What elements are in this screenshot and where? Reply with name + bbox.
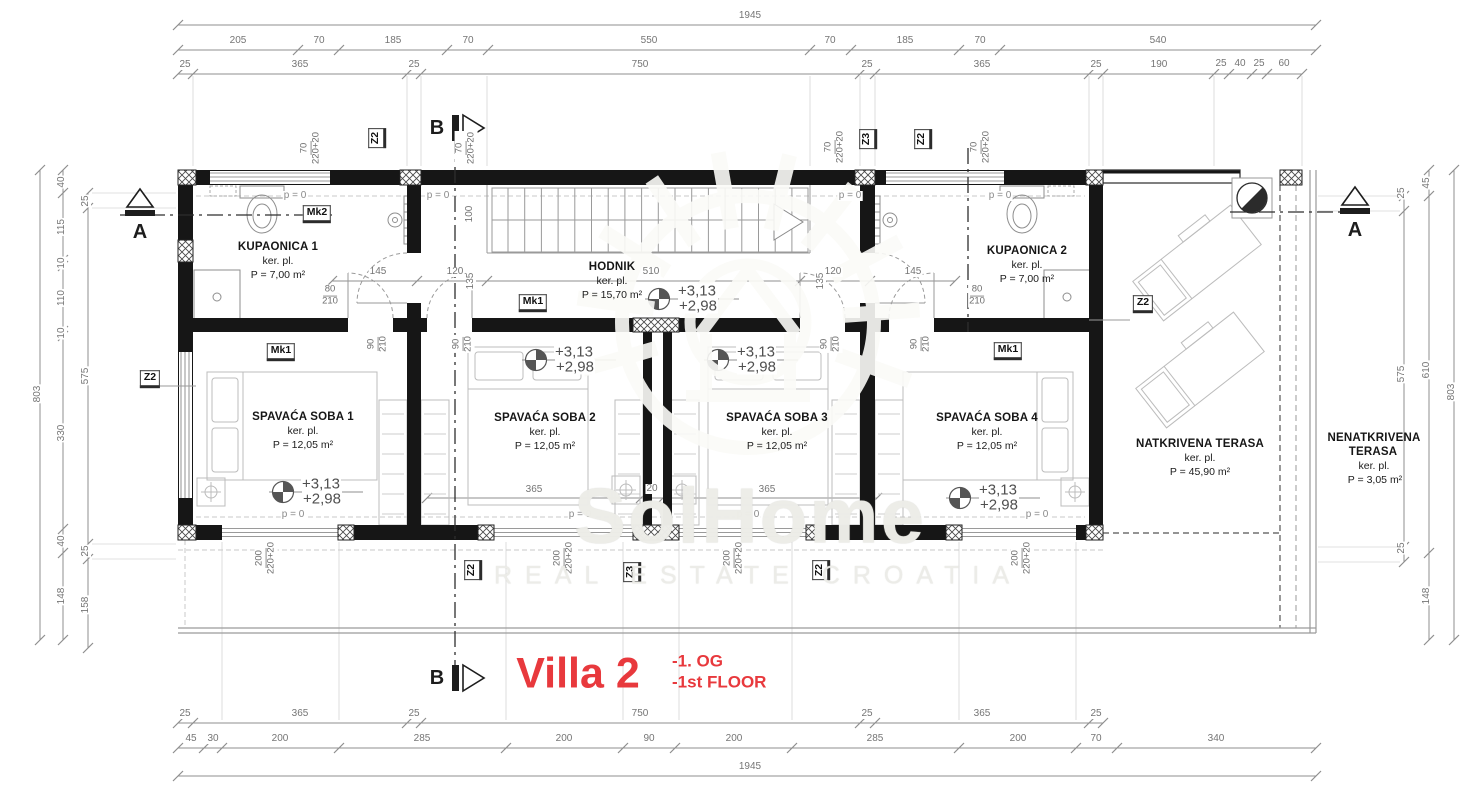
section-b-label: B: [430, 668, 444, 688]
mk1-marker-tag: Mk1: [519, 294, 547, 312]
dim-label: 100: [465, 205, 475, 224]
dim-label: 115: [57, 218, 67, 236]
dim-label: 185: [384, 36, 403, 46]
dim-label: 10: [57, 256, 67, 269]
dim-label: 575: [1397, 365, 1407, 384]
dim-label: 365: [973, 709, 992, 719]
dim-fraction: 200220+20: [255, 541, 278, 575]
room-name: HODNIK: [589, 261, 636, 273]
dim-label: 200: [271, 734, 290, 744]
level-upper-value: +3,13: [554, 345, 594, 360]
dim-label: 750: [631, 60, 650, 70]
room-area: P = 12,05 m²: [515, 440, 575, 452]
dim-label: 60: [1277, 59, 1290, 69]
dim-label: 25: [178, 709, 191, 719]
room-finish: ker. pl.: [972, 426, 1003, 438]
dim-label: 200: [725, 734, 744, 744]
room-finish: ker. pl.: [263, 255, 294, 267]
dim-fraction: 70220+20: [970, 130, 993, 164]
dim-fraction: 70220+20: [824, 130, 847, 164]
room-name: NENATKRIVENA: [1328, 432, 1421, 444]
dim-label: 750: [631, 709, 650, 719]
dim-label: 148: [57, 587, 67, 606]
section-b-label: B: [430, 118, 444, 138]
dim-label: 365: [973, 60, 992, 70]
dim-label: 30: [206, 734, 219, 744]
level-upper-value: +3,13: [978, 483, 1018, 498]
dim-label: 803: [1447, 383, 1457, 402]
dim-label: 1945: [738, 11, 762, 21]
dim-label: 200: [1009, 734, 1028, 744]
room-finish: ker. pl.: [597, 275, 628, 287]
room-area: P = 15,70 m²: [582, 289, 642, 301]
level-upper-value: +3,13: [736, 345, 776, 360]
room-finish: ker. pl.: [530, 426, 561, 438]
drawing-title: Villa 2: [516, 653, 640, 696]
room-area: P = 12,05 m²: [957, 440, 1017, 452]
z3-marker-tag: Z3: [859, 129, 877, 149]
level-lower-value: +2,98: [555, 360, 595, 375]
dim-label: 110: [57, 289, 67, 307]
dim-label: 45: [1422, 176, 1432, 189]
dim-label: 25: [1089, 709, 1102, 719]
dim-label: 330: [57, 424, 67, 443]
z2-marker-tag: Z2: [914, 129, 932, 149]
dim-label: 205: [229, 36, 248, 46]
room-name: TERASA: [1349, 446, 1397, 458]
z2-marker-tag: Z2: [1133, 295, 1153, 313]
dim-label: 25: [1214, 59, 1227, 69]
level-upper-value: +3,13: [677, 284, 717, 299]
room-name: SPAVAĆA SOBA 4: [936, 412, 1038, 424]
dim-fraction: 80210: [968, 285, 986, 308]
level-zero-label: p = 0: [281, 510, 306, 520]
dim-fraction: 80210: [321, 285, 339, 308]
dim-label: 803: [33, 385, 43, 404]
dim-label: 120: [446, 267, 465, 277]
room-finish: ker. pl.: [1185, 452, 1216, 464]
room-name: SPAVAĆA SOBA 3: [726, 412, 828, 424]
dim-label: 145: [904, 267, 923, 277]
room-name: KUPAONICA 2: [987, 245, 1067, 257]
dim-label: 610: [1422, 361, 1432, 380]
dim-label: 25: [407, 60, 420, 70]
room-finish: ker. pl.: [762, 426, 793, 438]
level-lower-value: +2,98: [737, 360, 777, 375]
dim-label: 540: [1149, 36, 1168, 46]
z2-marker-tag: Z2: [368, 128, 386, 148]
dim-label: 365: [291, 709, 310, 719]
floor-plan-page: 1945205701857055070185705402536525750253…: [0, 0, 1484, 795]
dim-fraction: 90210: [452, 335, 475, 353]
dim-label: 148: [1422, 587, 1432, 606]
room-area: P = 7,00 m²: [1000, 273, 1054, 285]
dim-label: 40: [57, 534, 67, 547]
room-finish: ker. pl.: [1012, 259, 1043, 271]
z2-marker-tag: Z2: [464, 560, 482, 580]
dim-fraction: 90210: [367, 335, 390, 353]
dim-label: 158: [81, 596, 91, 615]
dim-label: 40: [57, 175, 67, 188]
z2-marker-tag: Z2: [140, 370, 160, 388]
dim-label: 285: [413, 734, 432, 744]
level-lower-value: +2,98: [979, 498, 1019, 513]
dim-label: 185: [896, 36, 915, 46]
dim-label: 190: [1150, 60, 1169, 70]
dim-label: 575: [81, 367, 91, 386]
dim-fraction: 90210: [910, 335, 933, 353]
room-name: NATKRIVENA TERASA: [1136, 438, 1264, 450]
drawing-labels: 1945205701857055070185705402536525750253…: [0, 0, 1484, 795]
dim-label: 70: [973, 36, 986, 46]
dim-label: 10: [57, 326, 67, 339]
room-area: P = 7,00 m²: [251, 269, 305, 281]
level-zero-label: p = 0: [1025, 510, 1050, 520]
dim-label: 340: [1207, 734, 1226, 744]
dim-label: 550: [640, 36, 659, 46]
dim-label: 25: [860, 60, 873, 70]
level-zero-label: p = 0: [838, 191, 863, 201]
mk2-marker-tag: Mk2: [303, 205, 331, 223]
dim-label: 25: [860, 709, 873, 719]
level-lower-value: +2,98: [302, 492, 342, 507]
dim-label: 70: [461, 36, 474, 46]
dim-label: 70: [823, 36, 836, 46]
dim-fraction: 90210: [820, 335, 843, 353]
dim-label: 510: [642, 267, 661, 277]
level-zero-label: p = 0: [988, 191, 1013, 201]
room-area: P = 12,05 m²: [747, 440, 807, 452]
mk1-marker-tag: Mk1: [994, 342, 1022, 360]
section-a-label: A: [133, 222, 147, 242]
dim-label: 70: [1089, 734, 1102, 744]
dim-label: 40: [1233, 59, 1246, 69]
room-finish: ker. pl.: [1359, 460, 1390, 472]
dim-label: 90: [642, 734, 655, 744]
room-name: KUPAONICA 1: [238, 241, 318, 253]
dim-label: 25: [178, 60, 191, 70]
dim-label: 135: [816, 272, 826, 291]
drawing-floor-de: -1. OG: [672, 653, 723, 670]
dim-label: 25: [1397, 186, 1407, 199]
level-zero-label: p = 0: [283, 191, 308, 201]
dim-fraction: 70220+20: [300, 131, 323, 165]
level-zero-label: p = 0: [426, 191, 451, 201]
drawing-floor-en: -1st FLOOR: [672, 674, 766, 691]
dim-label: 25: [1252, 59, 1265, 69]
dim-label: 25: [81, 194, 91, 207]
dim-label: 70: [312, 36, 325, 46]
dim-label: 25: [407, 709, 420, 719]
dim-label: 25: [81, 544, 91, 557]
dim-label: 365: [525, 485, 544, 495]
dim-label: 25: [1397, 541, 1407, 554]
watermark-brand: SolHome: [574, 471, 926, 562]
dim-label: 45: [184, 734, 197, 744]
dim-fraction: 70220+20: [455, 131, 478, 165]
dim-label: 365: [291, 60, 310, 70]
dim-label: 285: [866, 734, 885, 744]
room-name: SPAVAĆA SOBA 1: [252, 411, 354, 423]
mk1-marker-tag: Mk1: [267, 343, 295, 361]
room-area: P = 3,05 m²: [1348, 474, 1402, 486]
room-finish: ker. pl.: [288, 425, 319, 437]
room-area: P = 45,90 m²: [1170, 466, 1230, 478]
dim-label: 1945: [738, 762, 762, 772]
room-name: SPAVAĆA SOBA 2: [494, 412, 596, 424]
watermark-tagline: REAL ESTATE CROATIA: [494, 562, 1022, 591]
dim-label: 135: [466, 272, 476, 291]
dim-label: 200: [555, 734, 574, 744]
dim-label: 25: [1089, 60, 1102, 70]
room-area: P = 12,05 m²: [273, 439, 333, 451]
dim-label: 145: [369, 267, 388, 277]
section-a-label: A: [1348, 220, 1362, 240]
dim-label: 120: [824, 267, 843, 277]
level-upper-value: +3,13: [301, 477, 341, 492]
level-lower-value: +2,98: [678, 299, 718, 314]
